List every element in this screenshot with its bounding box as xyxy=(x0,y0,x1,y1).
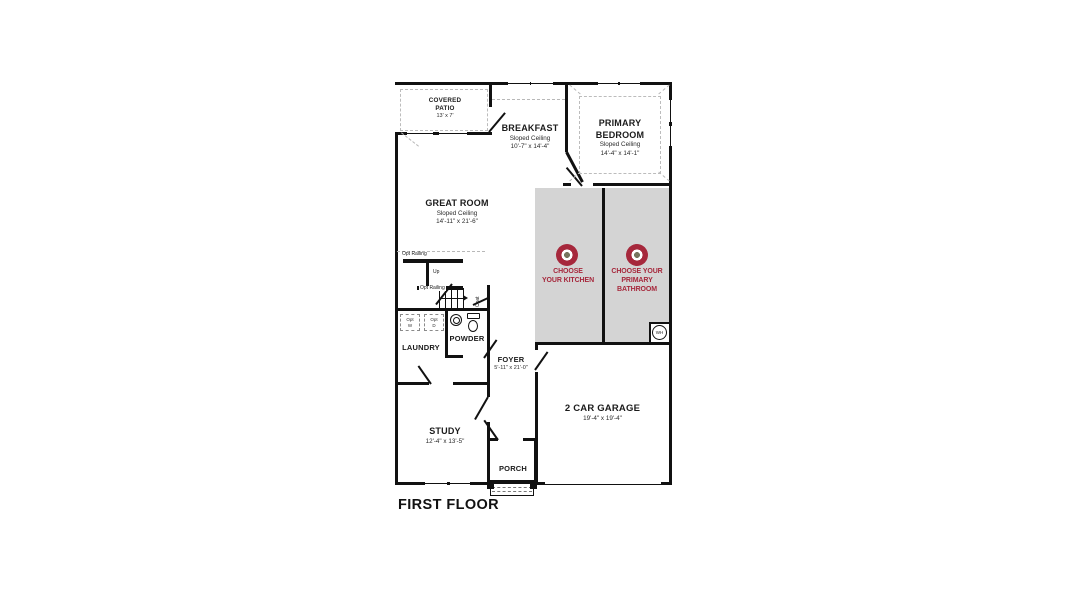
choose-kitchen-area[interactable]: CHOOSE YOUR KITCHEN xyxy=(535,188,602,343)
window xyxy=(598,82,618,85)
choose-primary-bathroom-area[interactable]: CHOOSE YOUR PRIMARY BATHROOM xyxy=(605,188,669,343)
powder-name: POWDER xyxy=(445,334,489,344)
wall xyxy=(535,342,672,345)
great-room-name: GREAT ROOM xyxy=(407,198,507,210)
choose-kitchen-label: CHOOSE YOUR KITCHEN xyxy=(536,268,600,286)
bathroom-choice-target-icon xyxy=(626,244,648,266)
garage-door-line xyxy=(545,484,661,485)
choose-bathroom-line1: CHOOSE YOUR xyxy=(611,268,662,275)
window xyxy=(669,100,672,122)
porch-name: PORCH xyxy=(490,464,536,474)
wall xyxy=(534,441,537,483)
breakfast-ceiling: Sloped Ceiling xyxy=(490,135,570,143)
opt-railing-label-1: Opt Railing xyxy=(402,252,427,257)
porch-steps xyxy=(490,483,534,496)
covered-patio-name: COVERED PATIO xyxy=(422,97,468,113)
stair-direction-arrow xyxy=(441,298,463,299)
choose-kitchen-line2: YOUR KITCHEN xyxy=(542,277,594,284)
room-garage-label: 2 CAR GARAGE 19'-4" x 19'-4" xyxy=(545,403,660,424)
foyer-dims: 5'-11" x 21'-0" xyxy=(488,365,534,372)
room-porch-label: PORCH xyxy=(490,464,536,474)
floor-plan-page: { "title": "FIRST FLOOR", "rooms": { "co… xyxy=(0,0,1067,600)
window xyxy=(425,482,447,485)
room-covered-patio-label: COVERED PATIO 13' x 7' xyxy=(409,97,481,120)
window xyxy=(450,482,470,485)
room-powder-label: POWDER xyxy=(445,334,489,344)
great-room-ceiling: Sloped Ceiling xyxy=(407,210,507,218)
window xyxy=(508,82,530,85)
room-laundry-label: LAUNDRY xyxy=(397,343,445,353)
coat-closet-label: Coat xyxy=(475,289,481,307)
room-primary-bedroom-label: PRIMARY BEDROOM Sloped Ceiling 14'-4" x … xyxy=(575,118,665,158)
great-room-dims: 14'-11" x 21'-6" xyxy=(407,218,507,226)
optional-washer-box: Opt W xyxy=(400,314,420,331)
primary-bedroom-dims: 14'-4" x 14'-1" xyxy=(575,150,665,158)
window xyxy=(669,126,672,146)
choose-kitchen-line1: CHOOSE xyxy=(553,268,583,275)
primary-bedroom-name: PRIMARY BEDROOM xyxy=(588,118,652,141)
study-dims: 12'-4" x 13'-5" xyxy=(403,438,487,446)
choose-bathroom-label: CHOOSE YOUR PRIMARY BATHROOM xyxy=(601,268,673,294)
porch-step-cap-left xyxy=(487,482,494,489)
room-study-label: STUDY 12'-4" x 13'-5" xyxy=(403,426,487,446)
kitchen-choice-target-icon xyxy=(556,244,578,266)
wall xyxy=(395,308,487,311)
plan-title: FIRST FLOOR xyxy=(398,497,499,513)
window xyxy=(620,82,640,85)
breakfast-name: BREAKFAST xyxy=(490,123,570,135)
primary-bedroom-ceiling: Sloped Ceiling xyxy=(575,141,665,149)
garage-dims: 19'-4" x 19'-4" xyxy=(545,415,660,423)
washer-line2: W xyxy=(408,323,412,328)
foyer-name: FOYER xyxy=(488,355,534,365)
opt-railing-label-2: Opt Railing xyxy=(419,286,446,291)
choose-bathroom-line2: PRIMARY BATHROOM xyxy=(617,277,657,293)
window xyxy=(407,132,433,135)
window xyxy=(439,132,467,135)
window xyxy=(531,82,553,85)
dryer-line2: D xyxy=(432,323,435,328)
wall xyxy=(487,441,490,483)
breakfast-dims: 10'-7" x 14'-4" xyxy=(490,143,570,151)
door-opening xyxy=(498,438,523,441)
porch-step-cap-right xyxy=(530,482,537,489)
wall xyxy=(649,322,669,324)
wall xyxy=(445,355,465,358)
wall xyxy=(426,263,429,286)
powder-toilet-tank xyxy=(467,313,480,319)
ceiling-dash xyxy=(569,85,580,95)
water-heater-label: WH xyxy=(656,330,664,335)
laundry-name: LAUNDRY xyxy=(397,343,445,353)
stair-arrow-head xyxy=(463,295,468,301)
ceiling-dash xyxy=(492,99,565,100)
powder-sink xyxy=(450,314,462,326)
wall xyxy=(649,322,651,342)
stairs-up-label: Up xyxy=(433,270,439,275)
ceiling-dash xyxy=(658,85,669,95)
optional-dryer-box: Opt D xyxy=(424,314,444,331)
washer-line1: Opt xyxy=(406,317,413,322)
floor-plan: CHOOSE YOUR KITCHEN CHOOSE YOUR PRIMARY … xyxy=(395,82,677,503)
room-breakfast-label: BREAKFAST Sloped Ceiling 10'-7" x 14'-4" xyxy=(490,123,570,151)
wall xyxy=(403,259,463,263)
wall xyxy=(602,188,605,345)
water-heater: WH xyxy=(652,325,667,340)
door-opening xyxy=(429,382,453,385)
covered-patio-dims: 13' x 7' xyxy=(409,113,481,120)
garage-name: 2 CAR GARAGE xyxy=(545,403,660,415)
room-foyer-label: FOYER 5'-11" x 21'-0" xyxy=(488,355,534,372)
study-name: STUDY xyxy=(403,426,487,438)
door-opening xyxy=(487,397,490,422)
wall xyxy=(489,85,492,107)
powder-toilet-bowl xyxy=(468,320,478,332)
room-great-room-label: GREAT ROOM Sloped Ceiling 14'-11" x 21'-… xyxy=(407,198,507,226)
dryer-line1: Opt xyxy=(430,317,437,322)
